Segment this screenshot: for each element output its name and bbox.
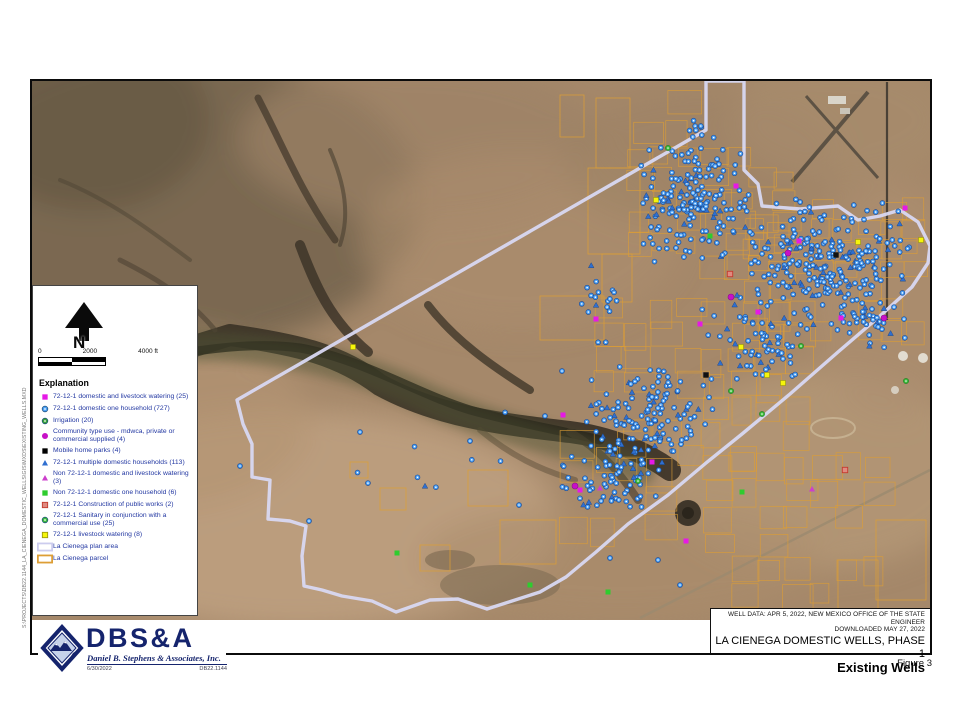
legend-item-label: 72-12-1 Sanitary in conjunction with a c…	[53, 512, 195, 528]
legend-item: La Cienega plan area	[37, 542, 195, 552]
legend-item-label: 72-12-1 livestock watering (8)	[53, 531, 195, 539]
legend-item-label: Mobile home parks (4)	[53, 447, 195, 455]
legend-item-label: 72-12-1 domestic and livestock watering …	[53, 393, 195, 401]
scale-tick: 0	[38, 348, 42, 355]
legend-item: 72-12-1 Construction of public works (2)	[37, 500, 195, 510]
legend-swatch-icon	[37, 488, 53, 498]
legend-item: 72-12-1 domestic and livestock watering …	[37, 392, 195, 402]
legend-item: Irrigation (20)	[37, 416, 195, 426]
legend-item-label: 72-12-1 multiple domestic households (11…	[53, 459, 195, 467]
scale-bar-graphic	[38, 357, 106, 366]
figure-number: Figure 3	[840, 658, 932, 669]
map-title: LA CIENEGA DOMESTIC WELLS, PHASE 1	[711, 635, 925, 661]
logo-project-number: DB22.1144	[199, 666, 227, 672]
legend-item: La Cienega parcel	[37, 554, 195, 564]
legend-item: Mobile home parks (4)	[37, 446, 195, 456]
mxd-file-path: S:\PROJECTS\DB22.1144_LA_CIENEGA_DOMESTI…	[22, 413, 28, 628]
legend-item: Non 72-12-1 domestic one household (6)	[37, 488, 195, 498]
legend-swatch-icon	[37, 554, 53, 564]
legend-item-label: 72-12-1 Construction of public works (2)	[53, 501, 195, 509]
logo-company-name: Daniel B. Stephens & Associates, Inc.	[87, 653, 227, 665]
legend-swatch-icon	[37, 404, 53, 414]
legend-swatch-icon	[37, 446, 53, 456]
north-arrow-head	[65, 302, 103, 328]
legend-item: Non 72-12-1 domestic and livestock water…	[37, 470, 195, 486]
legend-item: 72-12-1 Sanitary in conjunction with a c…	[37, 512, 195, 528]
scale-tick: 2000	[83, 348, 97, 355]
legend-item-label: La Cienega plan area	[53, 543, 195, 551]
scale-tick: 4000 ft	[138, 348, 158, 355]
legend-item-label: Irrigation (20)	[53, 417, 195, 425]
title-block: WELL DATA: APR 5, 2022, NEW MEXICO OFFIC…	[710, 608, 930, 653]
legend-swatch-icon	[37, 431, 53, 441]
company-logo: DBS&A Daniel B. Stephens & Associates, I…	[38, 622, 226, 678]
logo-numbers: 6/30/2022 DB22.1144	[87, 666, 227, 672]
legend-item-label: La Cienega parcel	[53, 555, 195, 563]
legend-swatch-icon	[37, 392, 53, 402]
well-data-source-line2: DOWNLOADED MAY 27, 2022	[711, 626, 925, 634]
legend-item-label: Non 72-12-1 domestic one household (6)	[53, 489, 195, 497]
legend-item-label: 72-12-1 domestic one household (727)	[53, 405, 195, 413]
legend-item: Community type use - mdwca, private or c…	[37, 428, 195, 444]
legend-swatch-icon	[37, 500, 53, 510]
logo-acronym: DBS&A	[86, 623, 195, 654]
legend-panel: N 020004000 ft Explanation 72-12-1 domes…	[32, 285, 198, 616]
legend-item-list: 72-12-1 domestic and livestock watering …	[37, 392, 195, 566]
legend-swatch-icon	[37, 542, 53, 552]
legend-item: 72-12-1 livestock watering (8)	[37, 530, 195, 540]
well-data-source-line1: WELL DATA: APR 5, 2022, NEW MEXICO OFFIC…	[711, 611, 925, 626]
dbsa-diamond-icon	[40, 624, 84, 674]
legend-item-label: Non 72-12-1 domestic and livestock water…	[53, 470, 195, 486]
logo-date: 6/30/2022	[87, 666, 112, 672]
scale-tick-labels: 020004000 ft	[38, 348, 158, 355]
figure-page: WELL DATA: APR 5, 2022, NEW MEXICO OFFIC…	[0, 0, 960, 720]
legend-swatch-icon	[37, 473, 53, 483]
legend-swatch-icon	[37, 416, 53, 426]
legend-swatch-icon	[37, 530, 53, 540]
legend-item-label: Community type use - mdwca, private or c…	[53, 428, 195, 444]
legend-item: 72-12-1 domestic one household (727)	[37, 404, 195, 414]
scale-bar: 020004000 ft	[38, 348, 158, 366]
legend-swatch-icon	[37, 515, 53, 525]
legend-heading: Explanation	[39, 378, 89, 388]
legend-item: 72-12-1 multiple domestic households (11…	[37, 458, 195, 468]
legend-swatch-icon	[37, 458, 53, 468]
